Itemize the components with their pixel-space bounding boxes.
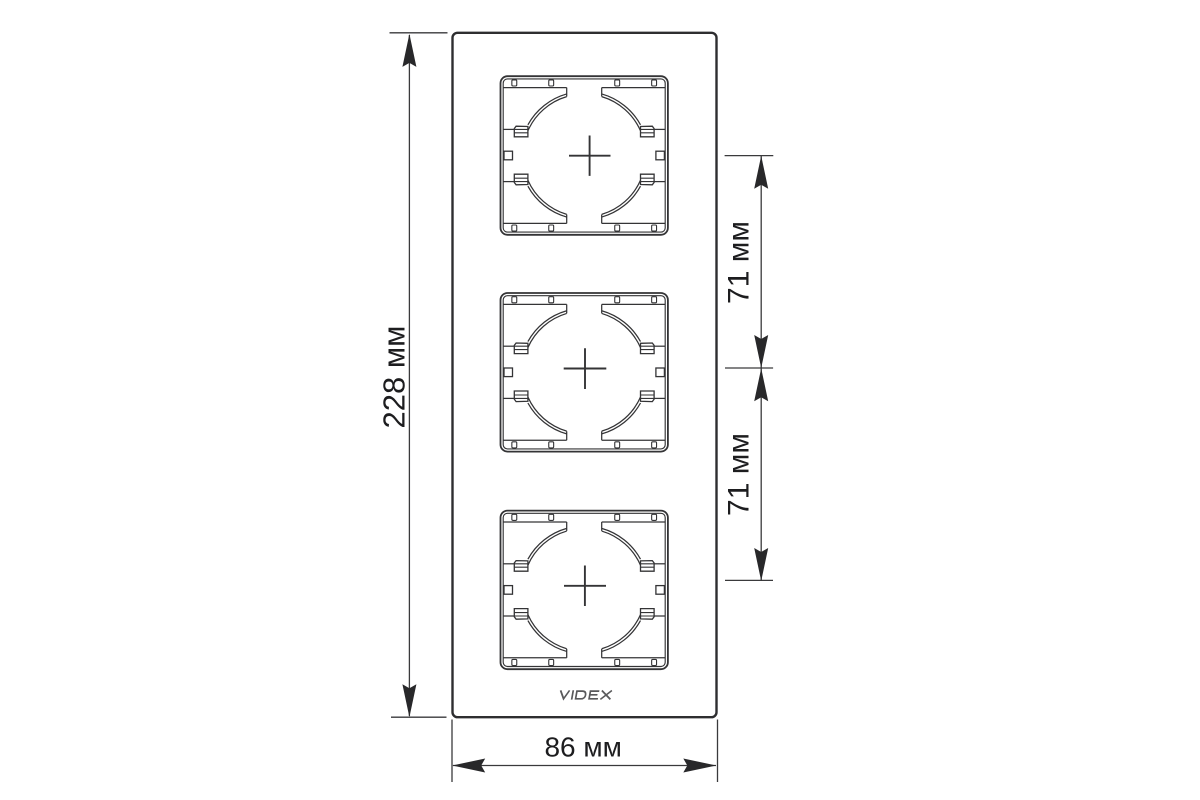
- svg-text:71 мм: 71 мм: [723, 433, 756, 516]
- svg-text:228 мм: 228 мм: [377, 326, 412, 429]
- svg-text:71 мм: 71 мм: [723, 221, 756, 304]
- svg-text:86 мм: 86 мм: [544, 732, 621, 763]
